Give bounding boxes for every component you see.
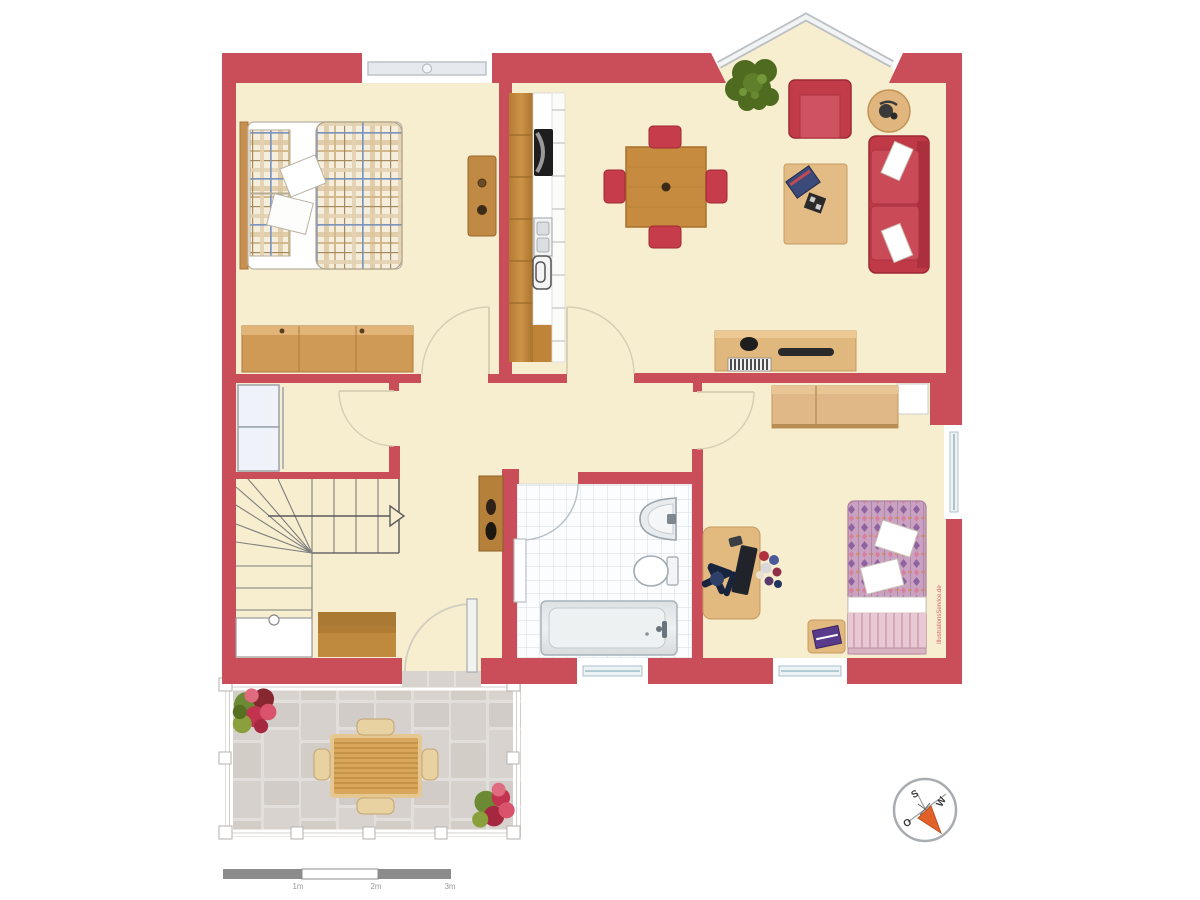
svg-text:2m: 2m — [370, 882, 381, 891]
svg-text:1m: 1m — [292, 882, 303, 891]
svg-text:IllustrationsService.de: IllustrationsService.de — [937, 585, 943, 644]
svg-text:3m: 3m — [444, 882, 455, 891]
